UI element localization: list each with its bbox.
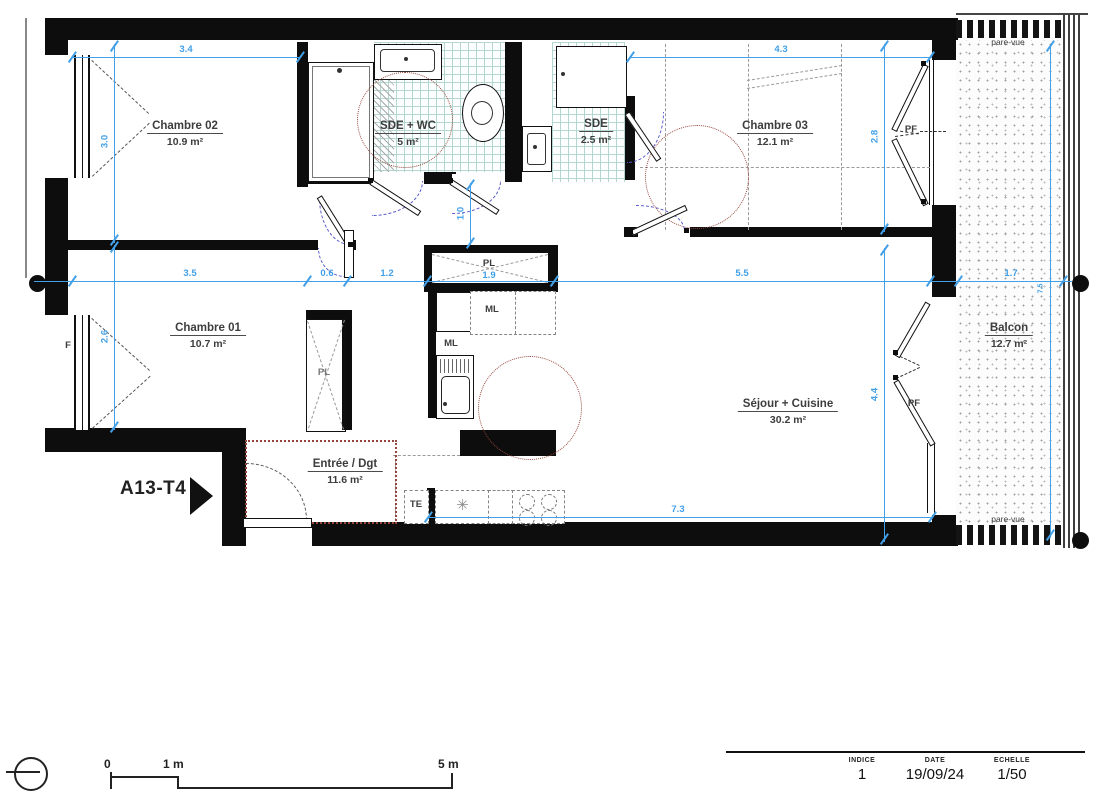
pf-leaf (891, 138, 928, 206)
scale-label-1m: 1 m (163, 757, 184, 771)
beam-dash-diagonal (747, 65, 842, 81)
dim-label: 4.3 (774, 44, 787, 55)
washing-machine (556, 46, 627, 108)
room-area: 11.6 m² (308, 472, 383, 486)
room-name: Chambre 03 (737, 120, 813, 134)
wall-bath-left (297, 42, 308, 187)
label-te: TE (410, 499, 422, 510)
room-label-chambre01: Chambre 01 10.7 m² (170, 322, 246, 350)
label-ml: ML (485, 304, 499, 315)
pare-vue-screen-top (956, 20, 1062, 38)
dim-label: 7.3 (671, 504, 684, 515)
window-hinge (921, 199, 926, 204)
door-hinge (348, 242, 353, 247)
turning-circle (478, 356, 582, 460)
window-swing-dash (91, 60, 149, 114)
unit-id: A13-T4 (120, 478, 186, 500)
dim-label: 3.0 (100, 129, 111, 155)
window-pf-chambre03 (929, 60, 934, 205)
fridge-box: ✳ (435, 490, 490, 524)
wall-kitchen (428, 292, 436, 418)
kitchen-sink-unit (436, 355, 474, 419)
dim-line (72, 57, 300, 58)
stove-box (512, 490, 565, 524)
room-area: 10.9 m² (147, 134, 223, 148)
scale-bar-segment (110, 776, 178, 778)
room-name: Séjour + Cuisine (738, 398, 838, 412)
label-ml: ML (444, 338, 458, 349)
room-name: Balcon (985, 322, 1033, 336)
dim-line (114, 44, 115, 243)
dim-label: 1.0 (456, 201, 467, 227)
burner (541, 510, 557, 526)
scale-label-5m: 5 m (438, 757, 459, 771)
window-hinge (893, 350, 898, 355)
dim-label: 3.5 (183, 268, 196, 279)
door-hinge (628, 229, 633, 234)
dim-line (884, 248, 885, 542)
burner (519, 510, 535, 526)
wall-closet-top (306, 310, 352, 319)
railing-post (1072, 532, 1089, 549)
dim-line (428, 517, 932, 518)
sink-drainer-stripes (440, 359, 469, 373)
pf-axis-dashdot (920, 131, 946, 132)
wall-right (932, 18, 956, 60)
title-block-scale-value: 1/50 (982, 766, 1042, 783)
wall-bath-sde (505, 42, 522, 182)
window-swing-dash (92, 376, 151, 429)
title-block-scale-label: ECHELLE (982, 757, 1042, 764)
label-pare-vue-bottom: pare-vue (991, 514, 1025, 524)
pf-leaf (894, 302, 930, 359)
door-hinge (448, 178, 453, 183)
washbasin-drain (404, 57, 408, 61)
wall-chambre03-bottom (690, 227, 932, 237)
sink-drain (443, 402, 447, 406)
label-pf: PF (905, 124, 917, 135)
wall-top (45, 18, 958, 40)
toilet (462, 84, 504, 142)
title-block-rule (726, 751, 1085, 753)
sde-washbasin (522, 126, 552, 172)
title-block-indice-label: INDICE (832, 757, 892, 764)
dim-line (1050, 44, 1051, 538)
scale-bar-tick (110, 772, 112, 789)
dim-label: 3.4 (179, 44, 192, 55)
wall-left (45, 18, 68, 55)
room-label-entree: Entrée / Dgt 11.6 m² (308, 458, 383, 486)
washbasin-bowl (380, 49, 435, 72)
room-label-sde-wc: SDE + WC 5 m² (375, 120, 441, 148)
room-area: 10.7 m² (170, 336, 246, 350)
label-f-window: F (65, 340, 71, 351)
railing-post (1072, 275, 1089, 292)
room-name: SDE (579, 118, 613, 132)
window-pf-sejour-fixed (927, 443, 935, 513)
dim-label: 7.5 (1038, 276, 1045, 302)
pare-vue-screen-bottom (956, 525, 1062, 545)
room-area: 30.2 m² (738, 412, 838, 426)
door-hinge (625, 108, 630, 113)
balcony-floor-texture (956, 40, 1062, 525)
title-block-date-value: 19/09/24 (900, 766, 970, 783)
window-glazing-line (82, 55, 83, 178)
sde-washbasin-bowl (527, 133, 546, 165)
entrance-arrow-icon (190, 477, 213, 515)
wall-entry-step (222, 428, 246, 546)
door-leaf-chambre01 (344, 230, 354, 278)
kitchen-boundary-dash (393, 455, 460, 456)
dim-label: 1.9 (482, 270, 495, 281)
column-marker (29, 275, 46, 292)
room-area: 5 m² (375, 134, 441, 148)
room-name: Entrée / Dgt (308, 458, 383, 472)
wall-right (932, 515, 956, 546)
neighbour-wall-line (25, 18, 27, 278)
label-pl-kitchen: PL (483, 258, 495, 269)
room-label-chambre03: Chambre 03 12.1 m² (737, 120, 813, 148)
title-block-indice-value: 1 (832, 766, 892, 783)
room-area: 12.1 m² (737, 134, 813, 148)
ml-box-divider (515, 292, 516, 334)
ml-appliance-box (470, 291, 556, 335)
label-pl-closet: PL (318, 367, 330, 378)
label-pare-vue-top: pare-vue (991, 37, 1025, 47)
dim-label: 0.6 (320, 268, 333, 279)
dim-label: 1.7 (1004, 268, 1017, 279)
scale-bar-tick (451, 773, 453, 789)
wall-left (45, 178, 68, 315)
dim-label: 1.2 (380, 268, 393, 279)
floor-plan-sheet: ✳ 3.4 4.3 (0, 0, 1100, 800)
burner (519, 494, 535, 510)
room-area: 2.5 m² (579, 132, 613, 146)
dim-label: 5.5 (735, 268, 748, 279)
door-hinge (368, 178, 373, 183)
dim-label: 4.4 (870, 382, 881, 408)
window-chambre01 (74, 315, 90, 430)
shower-drain (337, 68, 342, 73)
wall-bottom (312, 522, 958, 546)
dim-label: 2.6 (100, 324, 111, 350)
window-hinge (893, 375, 898, 380)
room-label-balcon: Balcon 12.7 m² (985, 322, 1033, 350)
pf-swing-dash (896, 367, 920, 379)
toilet-bowl (471, 101, 493, 125)
pf-leaf (893, 380, 935, 447)
room-name: Chambre 02 (147, 120, 223, 134)
pf-leaf (891, 64, 928, 132)
room-label-sde: SDE 2.5 m² (579, 118, 613, 146)
label-pf: PF (908, 398, 920, 409)
scale-bar-segment (177, 787, 453, 789)
dim-label: 2.8 (870, 124, 881, 150)
door-hinge (684, 228, 689, 233)
fridge-snowflake-icon: ✳ (456, 497, 469, 514)
wall-kitchen-pl-top (424, 245, 558, 253)
north-symbol-icon (14, 757, 48, 791)
room-label-chambre02: Chambre 02 10.9 m² (147, 120, 223, 148)
sink-bowl (441, 376, 470, 414)
bathroom-white-patch (308, 42, 374, 62)
window-chambre02 (74, 55, 90, 178)
sde-washbasin-drain (533, 145, 537, 149)
dim-line (884, 44, 885, 232)
entrance-door-leaf (243, 518, 312, 528)
room-label-sejour: Séjour + Cuisine 30.2 m² (738, 398, 838, 426)
room-name: Chambre 01 (170, 322, 246, 336)
north-symbol-line (6, 771, 40, 773)
kitchen-cabinet (436, 292, 474, 332)
counter-box (488, 490, 514, 524)
dim-line (630, 57, 932, 58)
wall-chambre02-bottom (68, 240, 318, 250)
burner (541, 494, 557, 510)
dim-line (114, 245, 115, 430)
room-area: 12.7 m² (985, 336, 1033, 350)
beam-dash-diagonal (747, 73, 842, 89)
machine-knob (561, 72, 565, 76)
scale-label-0: 0 (104, 757, 111, 771)
room-name: SDE + WC (375, 120, 441, 134)
window-glazing-line (82, 315, 83, 430)
dim-line (470, 183, 471, 245)
wall-chambre01-bottom (45, 428, 235, 452)
wall-right (932, 205, 956, 297)
title-block-date-label: DATE (900, 757, 970, 764)
